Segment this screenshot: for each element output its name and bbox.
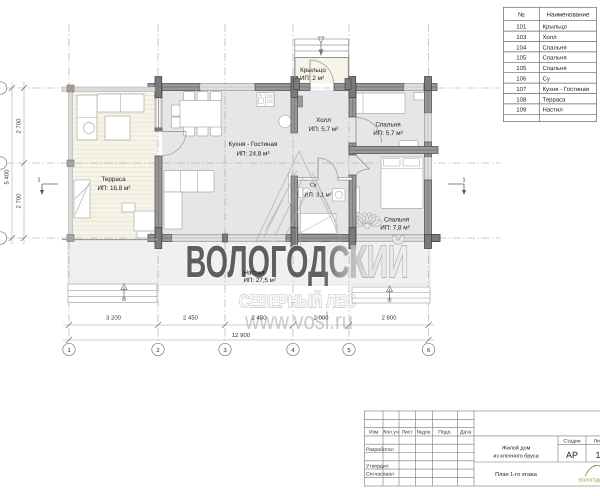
svg-text:Спальня: Спальня: [375, 122, 400, 129]
svg-text:2 700: 2 700: [16, 118, 23, 134]
svg-text:5 400: 5 400: [4, 169, 11, 185]
svg-text:Настил: Настил: [543, 107, 564, 114]
svg-text:№: №: [518, 12, 525, 19]
svg-text:2 450: 2 450: [183, 315, 199, 322]
svg-text:105: 105: [516, 65, 527, 72]
svg-text:ВОЛОГОДСКИЙ: ВОЛОГОДСКИЙ: [579, 478, 600, 483]
svg-text:1: 1: [462, 178, 465, 184]
svg-text:Подп.: Подп.: [438, 430, 452, 436]
svg-text:Лист: Лист: [402, 430, 414, 436]
svg-text:ИП: 5,7 м²: ИП: 5,7 м²: [309, 126, 338, 133]
svg-text:Кол.уч: Кол.уч: [383, 430, 399, 436]
svg-text:Кухня - Гостиная: Кухня - Гостиная: [543, 86, 590, 93]
svg-text:Терраса: Терраса: [101, 176, 126, 183]
svg-text:Изм: Изм: [369, 430, 379, 436]
svg-text:Лис: Лис: [594, 438, 600, 444]
svg-text:ИП: 5,7 м²: ИП: 5,7 м²: [373, 130, 402, 137]
svg-text:ИП: 3,1 м²: ИП: 3,1 м²: [304, 192, 331, 199]
svg-text:ИП: 7,8 м²: ИП: 7,8 м²: [380, 225, 409, 232]
svg-text:Су: Су: [310, 183, 317, 189]
svg-text:1: 1: [37, 178, 40, 184]
svg-text:Холл: Холл: [316, 117, 331, 124]
svg-text:Стадия: Стадия: [563, 438, 581, 444]
svg-text:Холл: Холл: [543, 34, 558, 41]
svg-text:Дата: Дата: [460, 430, 471, 436]
svg-text:ИП: 16,8 м²: ИП: 16,8 м²: [98, 185, 131, 192]
svg-text:3 200: 3 200: [106, 315, 122, 322]
svg-text:Су: Су: [543, 76, 550, 83]
svg-text:Спальня: Спальня: [543, 44, 567, 51]
svg-text:101: 101: [516, 24, 527, 31]
svg-text:Жилой дом: Жилой дом: [502, 446, 531, 452]
svg-text:ИП: 27,5 м²: ИП: 27,5 м²: [244, 277, 276, 284]
svg-text:Кухня - Гостиная: Кухня - Гостиная: [229, 141, 278, 148]
svg-text:АР: АР: [566, 450, 578, 460]
svg-text:Настил: Настил: [244, 270, 265, 277]
svg-text:105: 105: [516, 55, 527, 62]
svg-text:107: 107: [516, 86, 527, 93]
svg-text:104: 104: [516, 44, 527, 51]
svg-text:108: 108: [516, 96, 527, 103]
svg-text:Крыльцо: Крыльцо: [543, 24, 568, 31]
svg-text:Спальня: Спальня: [543, 55, 567, 62]
svg-text:2 450: 2 450: [251, 315, 267, 322]
svg-text:Терраса: Терраса: [543, 96, 567, 103]
svg-text:Спальня: Спальня: [543, 65, 567, 72]
svg-text:1: 1: [595, 450, 600, 460]
svg-text:№док.: №док.: [417, 430, 432, 436]
svg-text:2 700: 2 700: [16, 193, 23, 209]
svg-text:106: 106: [516, 76, 527, 83]
svg-text:2 000: 2 000: [313, 315, 329, 322]
svg-text:ИП: 2 м²: ИП: 2 м²: [300, 75, 324, 82]
svg-text:2 800: 2 800: [381, 315, 397, 322]
svg-text:Наименование: Наименование: [547, 12, 590, 19]
svg-text:Крыльцо: Крыльцо: [300, 67, 326, 74]
svg-text:www.vosl.ru: www.vosl.ru: [244, 308, 353, 335]
svg-text:103: 103: [516, 34, 527, 41]
svg-text:Утвердил: Утвердил: [366, 463, 389, 469]
svg-text:109: 109: [516, 107, 527, 114]
svg-text:Разработал: Разработал: [366, 447, 394, 453]
svg-text:План 1-го этажа: План 1-го этажа: [495, 472, 538, 478]
svg-text:ВОЛОГОДСКИЙ: ВОЛОГОДСКИЙ: [186, 236, 409, 287]
svg-text:12 900: 12 900: [232, 332, 251, 339]
svg-text:Спальня: Спальня: [384, 217, 409, 224]
svg-text:ИП: 24,8 м²: ИП: 24,8 м²: [237, 151, 270, 158]
svg-text:из клееного бруса: из клееного бруса: [493, 454, 538, 460]
svg-text:Согласовал: Согласовал: [366, 472, 394, 478]
